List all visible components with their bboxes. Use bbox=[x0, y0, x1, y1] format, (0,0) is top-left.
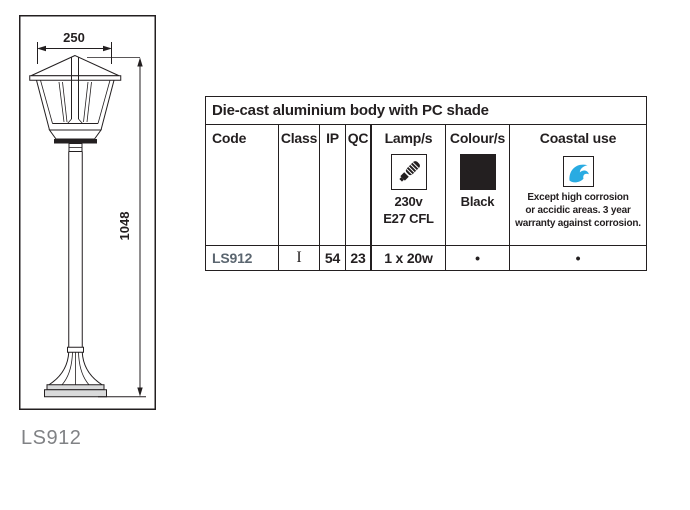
column-lamps: Lamp/s 230v E27 CFL bbox=[370, 125, 445, 245]
coastal-header: Coastal use bbox=[510, 125, 646, 146]
width-dimension-label: 250 bbox=[63, 30, 85, 45]
lamps-header: Lamp/s bbox=[372, 125, 445, 146]
data-class-value: I bbox=[279, 246, 319, 270]
lantern-head bbox=[30, 56, 140, 152]
spec-table: Die-cast aluminium body with PC shade Co… bbox=[205, 96, 647, 271]
lamp-icon-box bbox=[391, 154, 427, 190]
data-ip: 54 bbox=[319, 246, 345, 270]
coastal-note-line3: warranty against corrosion. bbox=[510, 217, 646, 230]
column-colours: Colour/s Black bbox=[445, 125, 509, 245]
wave-icon bbox=[565, 158, 592, 185]
data-coastal-dot: • bbox=[510, 246, 646, 270]
lamp-pole bbox=[68, 152, 84, 353]
data-lamps-value: 1 x 20w bbox=[372, 246, 445, 270]
column-ip: IP bbox=[319, 125, 345, 245]
data-code-value: LS912 bbox=[206, 246, 278, 270]
coastal-note: Except high corrosion or accidic areas. … bbox=[510, 191, 646, 230]
data-coastal: • bbox=[509, 246, 646, 270]
data-class: I bbox=[278, 246, 319, 270]
data-lamps: 1 x 20w bbox=[370, 246, 445, 270]
black-colour-swatch bbox=[460, 154, 496, 190]
colour-name: Black bbox=[446, 193, 509, 210]
coastal-note-line1: Except high corrosion bbox=[510, 191, 646, 204]
data-code: LS912 bbox=[206, 246, 278, 270]
column-code: Code bbox=[206, 125, 278, 245]
data-ip-value: 54 bbox=[320, 246, 345, 270]
column-qc: QC bbox=[345, 125, 370, 245]
colours-header: Colour/s bbox=[446, 125, 509, 146]
ip-header: IP bbox=[320, 125, 345, 146]
data-colours: • bbox=[445, 246, 509, 270]
wave-icon-box bbox=[563, 156, 594, 187]
lamp-voltage: 230v E27 CFL bbox=[372, 193, 445, 227]
height-dimension: 1048 bbox=[98, 58, 146, 397]
cfl-lamp-icon bbox=[392, 156, 425, 189]
height-dimension-label: 1048 bbox=[117, 212, 132, 241]
data-qc-value: 23 bbox=[346, 246, 370, 270]
spec-table-title: Die-cast aluminium body with PC shade bbox=[206, 97, 646, 125]
spec-data-row: LS912 I 54 23 1 x 20w • • bbox=[206, 245, 646, 270]
spec-header-row: Code Class IP QC Lamp/s bbox=[206, 125, 646, 245]
lamp-voltage-line2: E27 CFL bbox=[372, 210, 445, 227]
column-coastal: Coastal use Except high corrosion or acc… bbox=[509, 125, 646, 245]
qc-header: QC bbox=[346, 125, 370, 146]
lamp-voltage-line1: 230v bbox=[372, 193, 445, 210]
product-code-caption: LS912 bbox=[21, 427, 81, 450]
data-colours-dot: • bbox=[446, 246, 509, 270]
lamp-base bbox=[45, 352, 107, 397]
class-header: Class bbox=[279, 125, 319, 146]
catalog-page: 250 bbox=[0, 0, 690, 510]
coastal-note-line2: or accidic areas. 3 year bbox=[510, 204, 646, 217]
data-qc: 23 bbox=[345, 246, 370, 270]
lamp-post-technical-drawing: 250 bbox=[0, 0, 180, 460]
lamp-post-drawing-area: 250 bbox=[0, 0, 180, 460]
code-header: Code bbox=[206, 125, 278, 146]
column-class: Class bbox=[278, 125, 319, 245]
